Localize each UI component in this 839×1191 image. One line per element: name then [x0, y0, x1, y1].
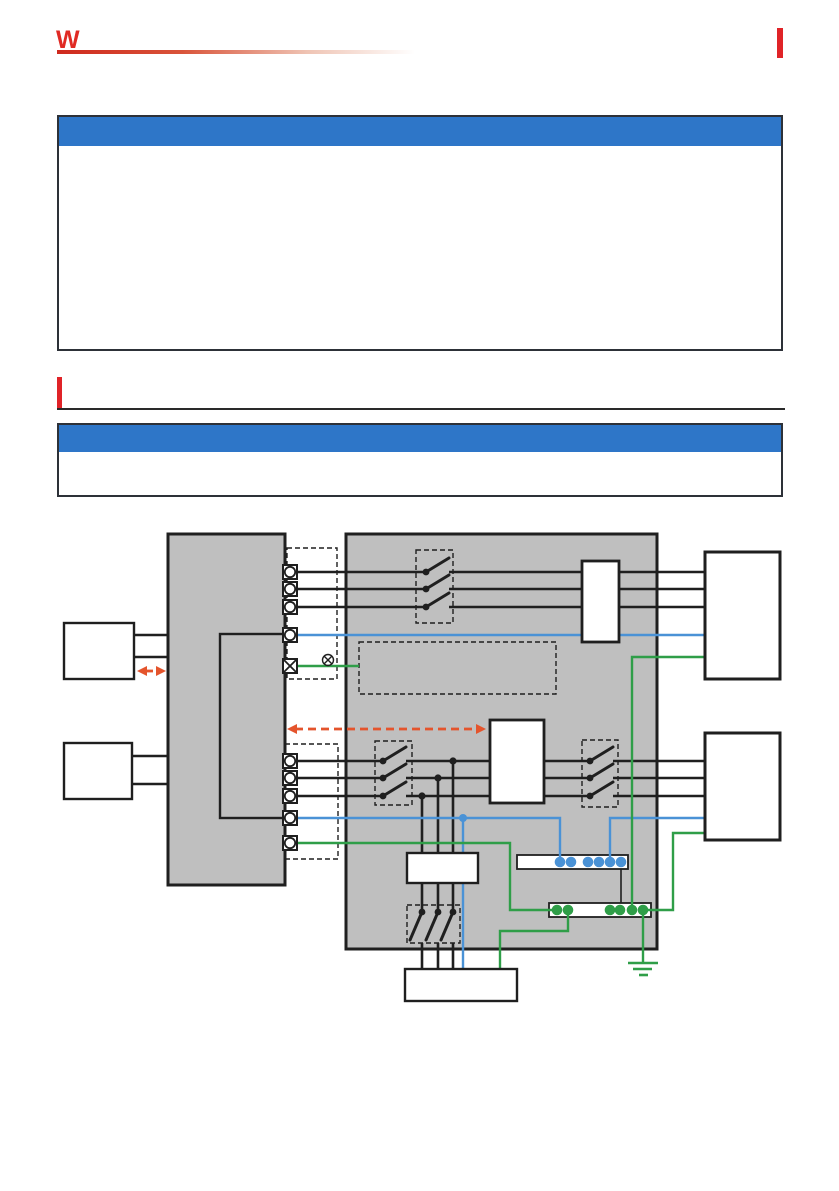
terminal-l-green-contact	[285, 838, 295, 848]
blue-terminal-strip-dot-5	[605, 857, 616, 868]
upper-right-device	[705, 552, 780, 679]
lower-right-device	[705, 733, 780, 840]
interface-arrow-left-head-right	[156, 666, 166, 676]
green-terminal-strip-dot-3	[605, 905, 616, 916]
switch-b1-pivot	[419, 909, 426, 916]
switch-l1-right-pivot	[587, 758, 594, 765]
bottom-device	[405, 969, 517, 1001]
blue-terminal-strip-dot-2	[566, 857, 577, 868]
switch-u3-pivot	[423, 604, 430, 611]
interface-arrow-left-head-left	[137, 666, 147, 676]
terminal-u1-contact	[285, 567, 295, 577]
junction-tap-c	[418, 792, 425, 799]
breaker-box	[407, 853, 478, 883]
terminal-l-blue-contact	[285, 813, 295, 823]
blue-terminal-strip-dot-3	[583, 857, 594, 868]
terminal-l1-contact	[285, 756, 295, 766]
terminal-u2-contact	[285, 584, 295, 594]
junction-blue	[459, 814, 467, 822]
switch-u1-pivot	[423, 569, 430, 576]
switch-u2-pivot	[423, 586, 430, 593]
green-terminal-strip-dot-6	[638, 905, 649, 916]
green-terminal-strip-dot-1	[552, 905, 563, 916]
switch-b2-pivot	[435, 909, 442, 916]
blue-terminal-strip-dot-4	[594, 857, 605, 868]
switch-b3-pivot	[450, 909, 457, 916]
blue-terminal-strip-dot-1	[555, 857, 566, 868]
green-terminal-strip-dot-5	[627, 905, 638, 916]
terminal-l2-contact	[285, 773, 295, 783]
junction-tap-a	[449, 757, 456, 764]
wiring-diagram	[0, 0, 839, 1191]
terminal-u3-contact	[285, 602, 295, 612]
upper-inline-module	[582, 561, 619, 642]
switch-l3-right-pivot	[587, 793, 594, 800]
left-measurement-unit	[168, 534, 285, 885]
terminal-l3-contact	[285, 791, 295, 801]
middle-module	[490, 720, 544, 803]
switch-l2-right-pivot	[587, 775, 594, 782]
switch-l1-left-pivot	[380, 758, 387, 765]
upper-left-device	[64, 623, 134, 679]
switch-l2-left-pivot	[380, 775, 387, 782]
interface-arrow-middle-head-left	[287, 724, 297, 734]
green-terminal-strip-dot-4	[615, 905, 626, 916]
lower-left-device	[64, 743, 132, 799]
switch-l3-left-pivot	[380, 793, 387, 800]
blue-terminal-strip-dot-6	[616, 857, 627, 868]
terminal-u-blue-contact	[285, 630, 295, 640]
manual-page: W	[0, 0, 839, 1191]
junction-tap-b	[434, 774, 441, 781]
green-terminal-strip-dot-2	[563, 905, 574, 916]
